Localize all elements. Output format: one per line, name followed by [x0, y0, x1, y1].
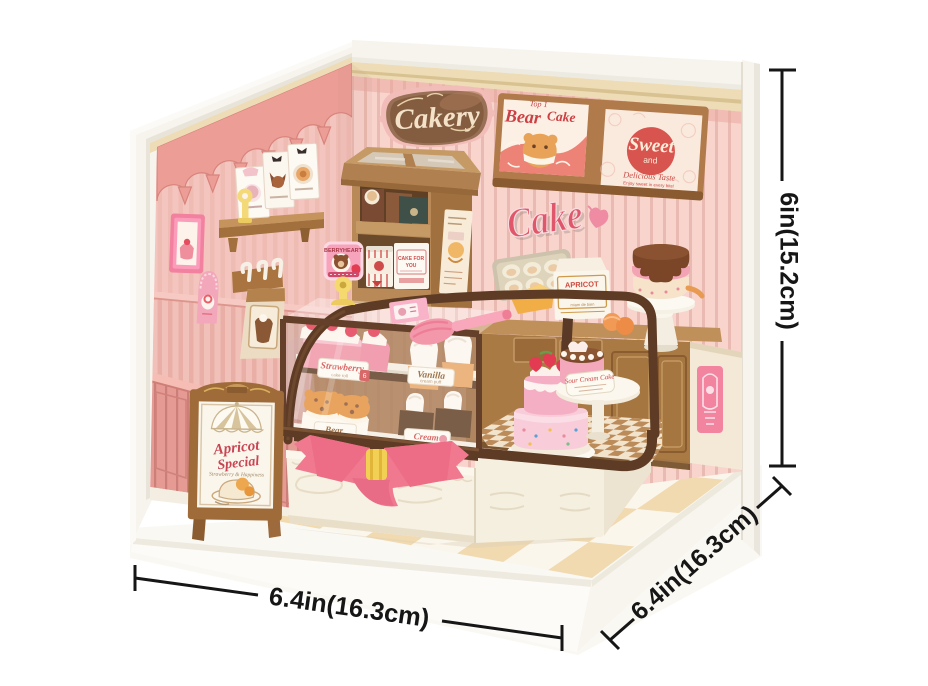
- svg-text:YOU: YOU: [406, 263, 417, 269]
- svg-text:APRICOT: APRICOT: [565, 279, 599, 289]
- svg-text:6in(15.2cm): 6in(15.2cm): [774, 192, 802, 330]
- svg-text:CAKE FOR: CAKE FOR: [398, 256, 425, 262]
- svg-text:Strawberry & Happiness: Strawberry & Happiness: [209, 472, 264, 479]
- svg-text:Cakery: Cakery: [394, 100, 481, 136]
- svg-text:and: and: [643, 155, 658, 166]
- svg-text:Sweet: Sweet: [628, 134, 675, 158]
- svg-text:Bear: Bear: [503, 105, 542, 127]
- svg-text:miam de bien: miam de bien: [570, 302, 594, 308]
- svg-text:BERRYHEART: BERRYHEART: [324, 248, 363, 254]
- svg-text:Top 1: Top 1: [530, 99, 548, 109]
- svg-text:Cake: Cake: [547, 108, 576, 125]
